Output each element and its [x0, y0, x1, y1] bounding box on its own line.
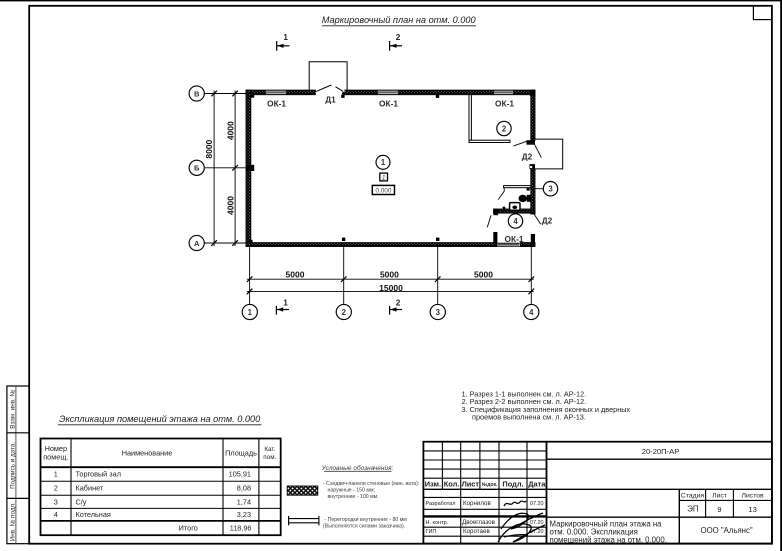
svg-text:Условные обозначения:: Условные обозначения: — [321, 464, 394, 472]
svg-text:5000: 5000 — [286, 270, 305, 280]
svg-text:13: 13 — [748, 505, 756, 514]
svg-text:ЭП: ЭП — [687, 505, 699, 514]
svg-text:07.20: 07.20 — [530, 520, 544, 526]
svg-text:1: 1 — [381, 158, 386, 167]
svg-text:ООО "Альянс": ООО "Альянс" — [701, 526, 753, 535]
svg-text:Подпись и дата.: Подпись и дата. — [10, 442, 17, 489]
svg-text:4: 4 — [54, 510, 58, 519]
svg-text:А: А — [194, 239, 200, 248]
svg-text:С/у: С/у — [76, 497, 87, 506]
svg-text:пом.: пом. — [263, 454, 276, 461]
svg-text:ОК-1: ОК-1 — [505, 234, 524, 244]
svg-text:Подл.: Подл. — [502, 479, 523, 488]
svg-text:внутренние - 100 мм.: внутренние - 100 мм. — [328, 494, 379, 500]
svg-text:Корнилов: Корнилов — [463, 500, 491, 507]
svg-text:4: 4 — [513, 217, 518, 226]
svg-text:ОК-1: ОК-1 — [495, 98, 514, 108]
svg-text:Маркировочный план на отм. 0.0: Маркировочный план на отм. 0.000 — [322, 15, 477, 25]
svg-text:8,08: 8,08 — [237, 484, 251, 493]
svg-text:Кол.: Кол. — [444, 479, 460, 488]
svg-text:3,23: 3,23 — [237, 510, 251, 519]
svg-text:1: 1 — [382, 175, 386, 182]
svg-text:3: 3 — [54, 497, 58, 506]
svg-text:Двоеглазов: Двоеглазов — [462, 519, 496, 526]
svg-text:№док.: №док. — [482, 482, 498, 488]
svg-text:3: 3 — [436, 308, 441, 317]
svg-text:помещений этажа на отм. 0.000.: помещений этажа на отм. 0.000. — [550, 535, 667, 544]
svg-text:2: 2 — [502, 124, 507, 133]
svg-text:118,96: 118,96 — [230, 524, 252, 533]
svg-text:проемов выполнена см. л. АР-13: проемов выполнена см. л. АР-13. — [472, 413, 586, 422]
svg-text:4: 4 — [529, 308, 534, 317]
svg-text:105,91: 105,91 — [229, 470, 251, 479]
svg-text:Торговый зал: Торговый зал — [76, 470, 121, 479]
svg-text:Экспликация помещений этажа на: Экспликация помещений этажа на отм. 0.00… — [59, 414, 261, 424]
svg-text:2: 2 — [342, 308, 347, 317]
svg-text:Кат.: Кат. — [264, 446, 275, 453]
svg-text:ОК-1: ОК-1 — [267, 98, 286, 108]
svg-text:Стадия: Стадия — [681, 492, 704, 499]
svg-text:помещ.: помещ. — [43, 453, 68, 462]
svg-text:наружные - 150 мм;: наружные - 150 мм; — [328, 488, 375, 494]
svg-text:Инв. № подл.: Инв. № подл. — [10, 502, 17, 541]
svg-text:1: 1 — [283, 298, 288, 307]
svg-text:Дата: Дата — [528, 479, 546, 488]
svg-text:Б: Б — [194, 164, 200, 173]
svg-text:ОК-1: ОК-1 — [379, 98, 398, 108]
svg-text:07.20: 07.20 — [530, 501, 544, 507]
svg-text:ГИП: ГИП — [426, 529, 437, 535]
svg-text:Коротаев: Коротаев — [463, 528, 490, 535]
svg-text:4000: 4000 — [226, 121, 236, 140]
svg-text:Разработал: Разработал — [426, 501, 456, 507]
svg-text:- Сэндвич-панели стеновые (мин: - Сэндвич-панели стеновые (мин. вата): — [323, 481, 419, 487]
svg-text:3: 3 — [548, 185, 553, 194]
svg-text:Д2: Д2 — [522, 152, 533, 162]
svg-text:Д2: Д2 — [542, 216, 553, 226]
svg-text:Кабинет: Кабинет — [76, 484, 104, 493]
svg-text:Площадь: Площадь — [225, 449, 257, 458]
svg-text:20-20П-АР: 20-20П-АР — [642, 447, 680, 456]
svg-text:1,74: 1,74 — [237, 497, 251, 506]
svg-text:В: В — [194, 89, 200, 98]
svg-text:Н. контр.: Н. контр. — [426, 520, 449, 526]
svg-text:5000: 5000 — [474, 270, 493, 280]
svg-text:Лист: Лист — [462, 479, 480, 488]
svg-text:0.000: 0.000 — [375, 187, 391, 194]
svg-text:Взам. инв. №: Взам. инв. № — [10, 389, 17, 428]
svg-text:9: 9 — [717, 505, 721, 514]
svg-text:Котельная: Котельная — [76, 510, 111, 519]
svg-text:1: 1 — [248, 308, 253, 317]
svg-text:1: 1 — [283, 33, 288, 42]
svg-text:2: 2 — [54, 484, 58, 493]
svg-text:1: 1 — [54, 470, 58, 479]
svg-text:- Перегородки внутренние - 80: - Перегородки внутренние - 80 мм — [325, 517, 408, 523]
svg-text:2: 2 — [396, 33, 401, 42]
svg-text:Наименование: Наименование — [122, 449, 173, 458]
svg-text:Лист: Лист — [712, 492, 727, 499]
svg-text:(Выполняются силами заказчика): (Выполняются силами заказчика). — [323, 523, 405, 529]
svg-text:Д1: Д1 — [325, 94, 336, 104]
svg-text:8000: 8000 — [204, 139, 214, 158]
svg-text:5000: 5000 — [380, 270, 399, 280]
svg-text:15000: 15000 — [379, 283, 403, 293]
svg-text:Листов: Листов — [742, 492, 764, 499]
svg-text:4000: 4000 — [226, 196, 236, 215]
svg-text:Итого: Итого — [179, 524, 198, 533]
svg-text:2: 2 — [396, 298, 401, 307]
svg-text:Изм.: Изм. — [425, 479, 441, 488]
